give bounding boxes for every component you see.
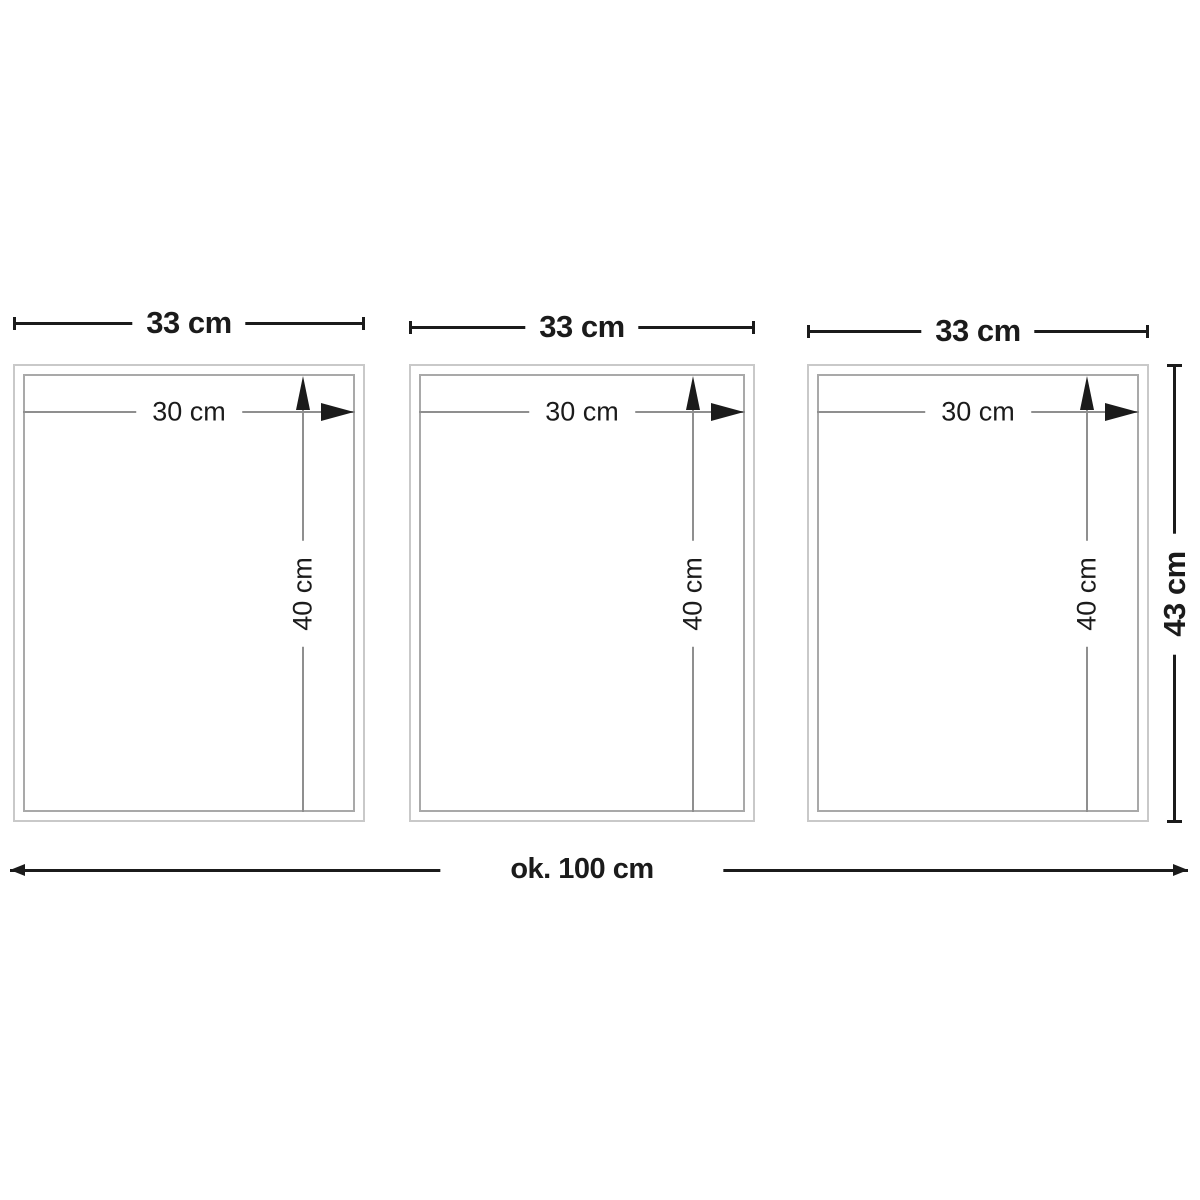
left-arrow-icon bbox=[10, 864, 25, 876]
dimension-end-tick bbox=[752, 321, 755, 334]
total-height-label: 43 cm bbox=[1158, 533, 1192, 654]
inner-width-label-1: 30 cm bbox=[136, 396, 242, 427]
dimension-end-tick bbox=[1167, 820, 1182, 823]
outer-width-label-3: 33 cm bbox=[921, 314, 1034, 348]
frame-1: 30 cm 40 cm bbox=[13, 364, 365, 822]
frame-2: 30 cm 40 cm bbox=[409, 364, 755, 822]
outer-width-dimension-3: 33 cm bbox=[807, 330, 1149, 333]
dimension-end-tick bbox=[1146, 325, 1149, 338]
right-arrow-icon bbox=[1105, 403, 1138, 421]
up-arrow-icon bbox=[686, 376, 700, 410]
right-arrow-icon bbox=[321, 403, 354, 421]
dimension-end-tick bbox=[807, 325, 810, 338]
dimension-end-tick bbox=[13, 317, 16, 330]
right-arrow-icon bbox=[711, 403, 744, 421]
up-arrow-icon bbox=[1080, 376, 1094, 410]
right-arrow-icon bbox=[1173, 864, 1188, 876]
up-arrow-icon bbox=[296, 376, 310, 410]
outer-width-label-2: 33 cm bbox=[525, 310, 638, 344]
outer-width-dimension-1: 33 cm bbox=[13, 322, 365, 325]
inner-height-label-1: 40 cm bbox=[287, 541, 318, 647]
dimension-diagram: 33 cm 33 cm 33 cm 30 cm 40 cm bbox=[0, 0, 1200, 1200]
outer-width-dimension-2: 33 cm bbox=[409, 326, 755, 329]
outer-width-label-1: 33 cm bbox=[132, 306, 245, 340]
dimension-end-tick bbox=[409, 321, 412, 334]
inner-height-label-2: 40 cm bbox=[677, 541, 708, 647]
inner-width-label-3: 30 cm bbox=[925, 396, 1031, 427]
inner-height-label-3: 40 cm bbox=[1071, 541, 1102, 647]
inner-width-label-2: 30 cm bbox=[529, 396, 635, 427]
dimension-end-tick bbox=[362, 317, 365, 330]
total-width-dimension: ok. 100 cm bbox=[10, 869, 1188, 872]
dimension-end-tick bbox=[1167, 364, 1182, 367]
frame-3: 30 cm 40 cm bbox=[807, 364, 1149, 822]
total-width-label: ok. 100 cm bbox=[440, 854, 723, 886]
